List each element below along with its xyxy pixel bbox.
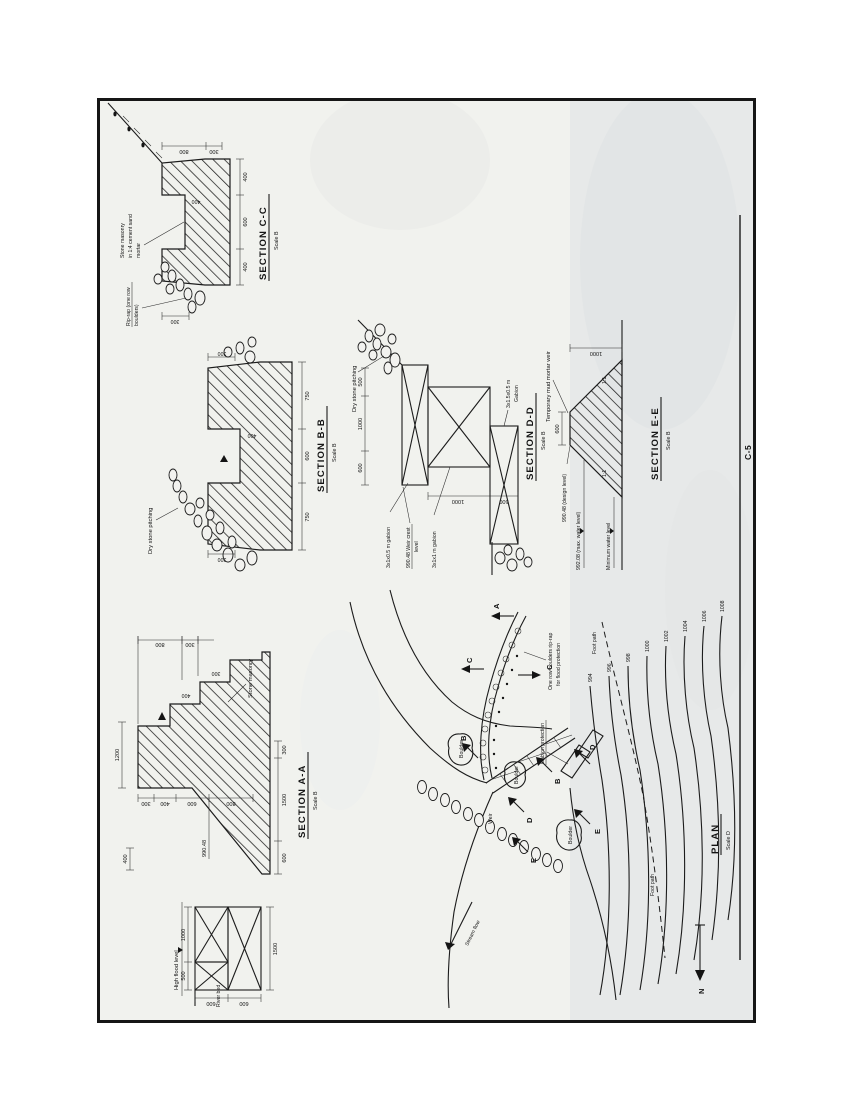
cc-riprap-label: boulders) [134,304,140,326]
cc-dim: 300 [209,148,218,154]
ee-design-level-label: 990.48 (design level) [562,474,568,522]
ee-dim: 600 [555,424,561,433]
cc-dim: 400 [243,172,249,181]
aa-high-flood-label: High flood level [174,950,180,990]
aa-scale: Scale B [313,791,319,810]
contour-label: 1000 [645,640,651,652]
aa-stone-masonry-label: Stone masonry [248,659,254,698]
plan-one-row-label: One row boulders rip-rap [548,633,554,690]
dd-crest-level-label: level [414,541,420,552]
drawing-canvas: 500 1000 600 600 1500 400 1200 300 400 6… [100,101,753,1020]
rotated-drawing-sheet: 500 1000 600 600 1500 400 1200 300 400 6… [100,101,753,1020]
cc-masonry-label: Stone masonry [120,223,126,258]
bb-dry-stone-label: Dry stone pitching [148,508,154,554]
aa-dim: 1500 [273,943,279,955]
ee-min-water-label: Minimum water level [606,523,612,570]
bb-title: SECTION B-B [316,418,327,492]
aa-dim: 300 [141,800,150,806]
aa-dim: 600 [206,1000,215,1006]
cc-dim: 600 [243,217,249,226]
aa-dim: 800 [226,800,235,806]
aa-dim: 1500 [282,794,288,806]
sheet-number: C-5 [743,445,753,460]
ee-scale: Scale B [666,431,672,450]
cc-masonry-label: mortar [136,243,142,258]
cc-scale: Scale B [274,231,280,250]
dd-gabion-big-label: 3x1x1 m gabion [432,531,438,568]
contour-label: 1004 [683,620,689,632]
aa-dim: 600 [239,1000,248,1006]
aa-crest-level: 990.48 [202,840,208,857]
scan-border-frame: 500 1000 600 600 1500 400 1200 300 400 6… [97,98,756,1023]
plan-boulder-label: Boulder [514,766,520,784]
dd-gabion-right-label: 3x1.5x0.5 m [506,380,512,408]
bb-dim: 750 [305,512,311,521]
cc-masonry-label: in 1:4 cement sand [128,214,134,258]
dd-dim: 500 [358,377,364,386]
aa-dim: 300 [282,745,288,754]
dd-crest-level-label: 990.48 Weir crest [406,527,412,568]
plan-cut-letter: D [588,744,597,750]
plan-weir-label: Weir [488,813,494,824]
dd-dry-stone-label: Dry stone pitching [352,366,358,412]
bb-scale: Scale B [332,443,338,462]
plan-one-row-label: for flood protection [556,643,562,686]
plan-scale: Scale D [726,831,732,850]
dd-dim: 1000 [358,418,364,430]
ee-dim: 1000 [590,350,602,356]
aa-river-bed-label: River bed [216,985,222,1007]
plan-boulder-label: Boulder [568,826,574,844]
aa-title: SECTION A-A [297,765,308,839]
aa-dim: 1200 [115,749,121,761]
plan-foot-path-label: Foot path [592,632,598,654]
plan-cut-letter: B [553,778,562,784]
cc-dim: 300 [171,318,180,324]
ee-temporary-weir-label: Temporary mud mortar weir [546,351,552,422]
dd-scale: Scale B [541,431,547,450]
plan-title: PLAN [710,824,721,854]
bb-dim: 400 [248,432,257,438]
dd-title: SECTION D-D [525,406,536,480]
aa-dim: 500 [181,971,187,980]
ee-max-water-label: 992.08 (max. water level) [576,511,582,570]
scanned-drawing-page: 500 1000 600 600 1500 400 1200 300 400 6… [0,0,850,1100]
plan-gabion-protection-label: Gabion protection [540,723,546,764]
plan-cut-letter: D [525,817,534,823]
dd-gabion-right-label: Gabion [514,385,520,402]
plan-cut-letter: B [459,735,468,741]
dd-dim: 500 [499,498,508,504]
bb-dim: 300 [218,350,227,356]
contour-label: 998 [626,653,632,662]
aa-dim: 300 [185,641,194,647]
dd-dim: 600 [358,463,364,472]
plan-cut-letter: A [492,603,501,609]
aa-dim: 1000 [181,929,187,941]
aa-dim: 600 [282,853,288,862]
aa-dim: 300 [212,670,221,676]
aa-dim: 400 [123,854,129,863]
aa-dim: 600 [187,800,196,806]
cc-dim: 400 [243,262,249,271]
cc-riprap-label: Rip-rap (one row [126,287,132,326]
plan-foot-path-label: Foot path [650,874,656,896]
ee-title: SECTION E-E [650,407,661,480]
plan-cut-letter: E [529,858,538,863]
plan-cut-letter: E [593,829,602,834]
contour-label: 1006 [702,610,708,622]
contour-label: 1008 [720,600,726,612]
cc-title: SECTION C-C [258,206,269,280]
ee-slope-label: 1:1 [602,470,608,477]
ee-slope-label: 1:1 [602,377,608,384]
contour-label: 1002 [664,630,670,642]
cc-dim: 400 [192,198,201,204]
bb-dim: 600 [305,451,311,460]
bb-dim: 750 [305,391,311,400]
bb-dim: 300 [218,556,227,562]
aa-dim: 400 [182,692,191,698]
contour-label: 996 [607,663,613,672]
aa-dim: 400 [160,800,169,806]
plan-north-label: N [697,989,706,994]
contour-label: 994 [588,673,594,682]
cc-dim: 800 [179,148,188,154]
plan-cut-letter: C [465,657,474,663]
dd-gabion-small-label: 3x1x0.5 m gabion [386,527,392,568]
dd-dim: 1000 [452,498,464,504]
aa-dim: 800 [155,641,164,647]
